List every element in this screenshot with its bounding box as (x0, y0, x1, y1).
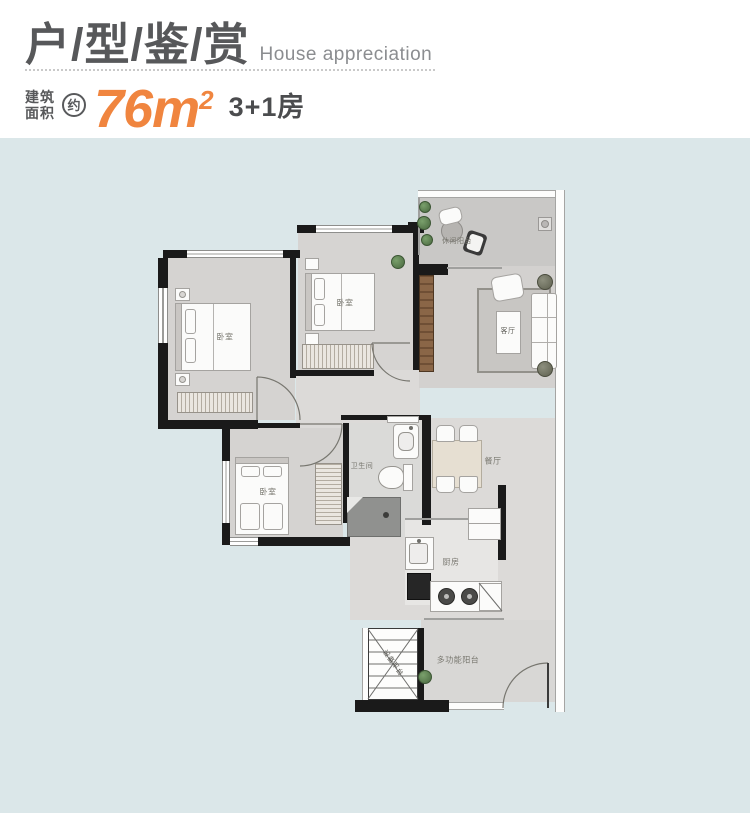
toilet-icon (378, 466, 404, 489)
area-label: 建筑 面积 (25, 89, 55, 121)
faucet-dot (417, 539, 421, 543)
nightstand-icon (305, 258, 319, 270)
sofa-icon (531, 293, 557, 369)
title-row: 户/型/鉴/赏 House appreciation (25, 8, 432, 73)
armchair-icon (490, 272, 525, 302)
fridge-line (468, 523, 501, 524)
wall-segment (222, 428, 230, 461)
sofa-cushion-line (532, 317, 556, 318)
bed-cushion (240, 503, 260, 530)
plant-icon (537, 361, 553, 377)
area-value: 76m2 (94, 76, 213, 133)
plant-icon (417, 216, 431, 230)
room-label-bedroom-2: 卧室 (337, 298, 354, 309)
window (158, 288, 168, 343)
bed-headboard (175, 303, 182, 371)
wall-segment (418, 628, 424, 702)
pillow-icon (263, 466, 282, 477)
balcony-glazing (418, 190, 560, 198)
window (316, 225, 392, 233)
room-label-living: 客厅 (501, 326, 516, 336)
wall-segment (296, 370, 374, 376)
area-row: 建筑 面积 约 76m2 3+1房 (25, 76, 305, 133)
burner-center (444, 594, 449, 599)
wardrobe-icon (177, 392, 253, 413)
page-title: 户/型/鉴/赏 (25, 8, 250, 73)
leisure-balcony-floor (418, 198, 560, 266)
lamp-icon (179, 376, 186, 383)
wall-segment (355, 700, 449, 712)
wall-segment (290, 258, 296, 352)
plant-icon (419, 201, 431, 213)
sofa-back-line (547, 294, 548, 368)
wall-segment (158, 258, 168, 288)
wall-segment (230, 423, 300, 428)
sofa-cushion-line (532, 342, 556, 343)
room-label-dining: 餐厅 (485, 456, 502, 467)
sliding-door (387, 416, 419, 423)
faucet-dot (409, 426, 413, 430)
wall-segment (297, 225, 316, 233)
corner-cabinet (479, 583, 502, 611)
chair-icon (436, 425, 455, 442)
lamp-icon (179, 291, 186, 298)
thin-wall (424, 618, 504, 620)
pillow-icon (185, 338, 196, 363)
poster-page: 户/型/鉴/赏 House appreciation 建筑 面积 约 76m2 … (0, 0, 750, 813)
page-subtitle: House appreciation (260, 44, 433, 66)
plant-icon (391, 255, 405, 269)
room-label-bathroom: 卫生间 (351, 461, 374, 471)
chair-icon (459, 425, 478, 442)
floor-plan: 卧室 卧室 卧室 客厅 餐厅 厨房 卫生间 休闲阳台 多功能阳台 设备平台 (155, 185, 567, 717)
wall-segment (222, 523, 230, 545)
blanket-line (213, 304, 214, 370)
wall-segment (415, 264, 448, 275)
fridge-icon (468, 508, 501, 540)
plant-icon (537, 274, 553, 290)
shower-head (383, 512, 389, 518)
bed-cushion (263, 503, 283, 530)
wall-segment (258, 537, 350, 546)
plant-icon (421, 234, 433, 246)
bed-headboard (235, 457, 289, 464)
window (222, 461, 230, 523)
room-label-leisure-balcony: 休闲阳台 (442, 236, 472, 246)
plant-icon (418, 670, 432, 684)
sink-basin (398, 432, 414, 451)
burner-center (467, 594, 472, 599)
pillow-icon (185, 309, 196, 334)
chair-icon (459, 476, 478, 493)
kitchen-sink-icon (409, 543, 428, 564)
wardrobe-icon (315, 463, 342, 525)
wall-segment (163, 250, 187, 258)
chair-icon (436, 476, 455, 493)
window (187, 250, 283, 258)
pillow-icon (314, 278, 325, 300)
entry-cabinet (419, 275, 434, 372)
bed-headboard (305, 273, 312, 331)
area-superscript: 2 (199, 85, 212, 115)
dotted-divider (25, 69, 435, 71)
pillow-icon (241, 466, 260, 477)
room-label-multi-balcony: 多功能阳台 (437, 655, 480, 666)
wardrobe-icon (302, 344, 374, 369)
thin-wall (447, 267, 502, 269)
appliance-dark (407, 573, 431, 600)
shower-door (347, 497, 363, 513)
pillow-icon (314, 304, 325, 326)
drain-circle (541, 220, 549, 228)
wall-segment (158, 343, 168, 420)
layout-text: 3+1房 (229, 85, 306, 124)
wall-segment (283, 250, 300, 258)
blue-panel: 卧室 卧室 卧室 客厅 餐厅 厨房 卫生间 休闲阳台 多功能阳台 设备平台 (0, 138, 750, 813)
wall-segment (422, 415, 431, 525)
approx-badge: 约 (62, 93, 86, 117)
room-label-bedroom-3: 卧室 (260, 487, 277, 498)
room-label-bedroom-1: 卧室 (217, 332, 234, 343)
right-glazing (555, 190, 565, 712)
toilet-tank (403, 464, 413, 491)
bottom-glazing (449, 702, 504, 710)
window (230, 537, 258, 546)
header: 户/型/鉴/赏 House appreciation 建筑 面积 约 76m2 … (0, 0, 750, 138)
room-label-kitchen: 厨房 (443, 557, 460, 568)
